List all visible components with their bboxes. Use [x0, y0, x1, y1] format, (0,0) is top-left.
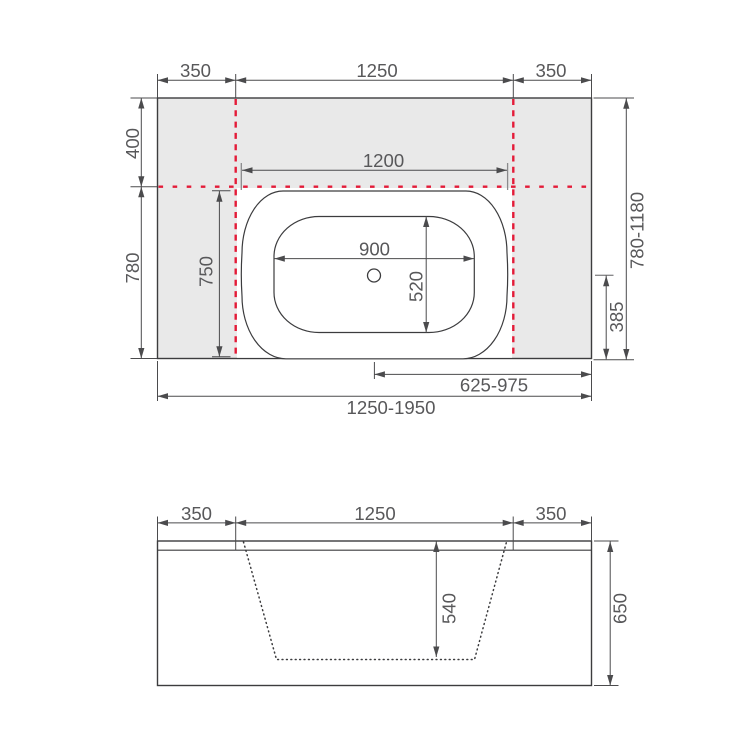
- svg-text:650: 650: [610, 593, 631, 624]
- svg-text:520: 520: [405, 271, 426, 302]
- svg-text:1250: 1250: [354, 503, 395, 524]
- svg-text:385: 385: [606, 301, 627, 332]
- svg-text:350: 350: [535, 60, 566, 81]
- svg-text:350: 350: [535, 503, 566, 524]
- svg-text:900: 900: [359, 238, 390, 259]
- svg-text:1200: 1200: [363, 150, 404, 171]
- svg-text:1250-1950: 1250-1950: [347, 397, 436, 418]
- svg-text:400: 400: [122, 128, 143, 159]
- svg-text:625-975: 625-975: [460, 375, 528, 396]
- svg-text:750: 750: [196, 256, 217, 287]
- svg-text:780-1180: 780-1180: [627, 192, 648, 269]
- svg-text:350: 350: [180, 60, 211, 81]
- svg-text:1250: 1250: [356, 60, 397, 81]
- svg-text:540: 540: [439, 593, 460, 624]
- svg-text:780: 780: [122, 252, 143, 283]
- svg-text:350: 350: [181, 503, 212, 524]
